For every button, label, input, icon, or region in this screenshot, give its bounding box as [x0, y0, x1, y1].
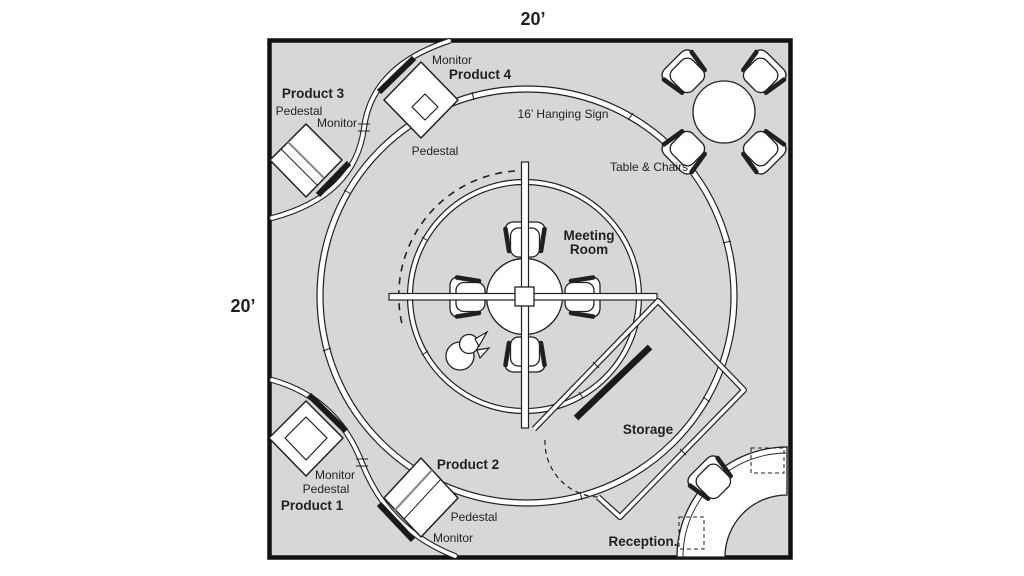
product1-pedestal-label: Pedestal	[303, 482, 350, 496]
booth-width-label: 20’	[520, 9, 545, 29]
product1-name-label: Product 1	[281, 498, 344, 513]
meeting-room-label-line1: Meeting	[563, 228, 614, 243]
booth-depth-label: 20’	[230, 296, 255, 316]
product4-name-label: Product 4	[449, 67, 512, 82]
product2-monitor-label: Monitor	[433, 531, 473, 545]
product1-monitor-label: Monitor	[315, 468, 355, 482]
guest-table	[693, 81, 755, 143]
floor-plan-svg: 20’ 20’ 16’ Hanging Sign Table & Chairs …	[0, 0, 1024, 576]
product4-monitor-label: Monitor	[432, 53, 472, 67]
meeting-room-label-line2: Room	[570, 242, 608, 257]
table-chairs-label: Table & Chairs	[610, 160, 688, 174]
storage-label: Storage	[623, 422, 674, 437]
product3-pedestal-label: Pedestal	[276, 104, 323, 118]
hanging-sign-label: 16’ Hanging Sign	[518, 107, 609, 121]
partition-center-post	[515, 287, 534, 306]
product3-name-label: Product 3	[282, 86, 345, 101]
product4-pedestal-label: Pedestal	[412, 144, 459, 158]
product3-monitor-label: Monitor	[317, 116, 357, 130]
product2-pedestal-label: Pedestal	[451, 510, 498, 524]
product2-name-label: Product 2	[437, 457, 499, 472]
booth-floor-plan: 20’ 20’ 16’ Hanging Sign Table & Chairs …	[0, 0, 1024, 576]
reception-label: Reception.	[608, 534, 677, 549]
